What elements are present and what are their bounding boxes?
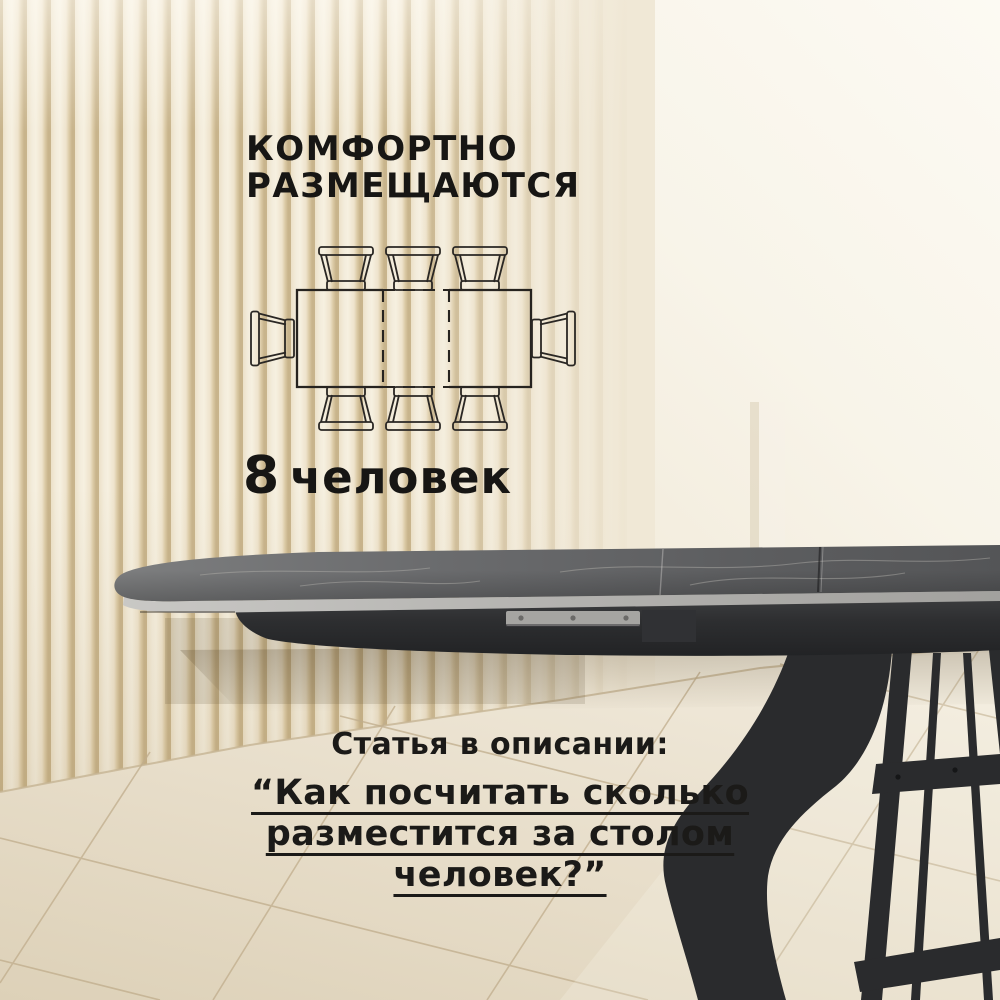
headline: КОМФОРТНО РАЗМЕЩАЮТСЯ xyxy=(246,131,581,205)
headline-line2: РАЗМЕЩАЮТСЯ xyxy=(246,168,581,205)
article-quote-line: человек?” xyxy=(393,855,606,895)
article-quote-line: разместится за столом xyxy=(266,814,734,854)
capacity-number: 8 xyxy=(243,446,280,506)
article-note: Статья в описании: “Как посчитать скольк… xyxy=(130,727,870,896)
article-quote-line: “Как посчитать сколько xyxy=(251,773,749,813)
article-quote: “Как посчитать сколько разместится за ст… xyxy=(130,773,870,896)
chair-icon xyxy=(319,387,373,430)
headline-line1: КОМФОРТНО xyxy=(246,131,581,168)
chair-icon xyxy=(386,387,440,430)
seating-diagram-icon xyxy=(225,240,601,440)
chair-icon xyxy=(453,387,507,430)
capacity-unit: человек xyxy=(290,451,512,504)
chair-icon xyxy=(251,312,294,366)
chair-icon xyxy=(532,312,575,366)
chair-icon xyxy=(386,247,440,290)
capacity-text: 8человек xyxy=(243,446,512,506)
chair-icon xyxy=(453,247,507,290)
article-intro: Статья в описании: xyxy=(130,727,870,762)
wall-corner-shade xyxy=(750,402,785,548)
table-outline xyxy=(297,290,531,387)
extension-leaf-dashed xyxy=(383,290,449,387)
chair-icon xyxy=(319,247,373,290)
product-infographic: КОМФОРТНО РАЗМЕЩАЮТСЯ 8человек Статья в … xyxy=(0,0,1000,1000)
